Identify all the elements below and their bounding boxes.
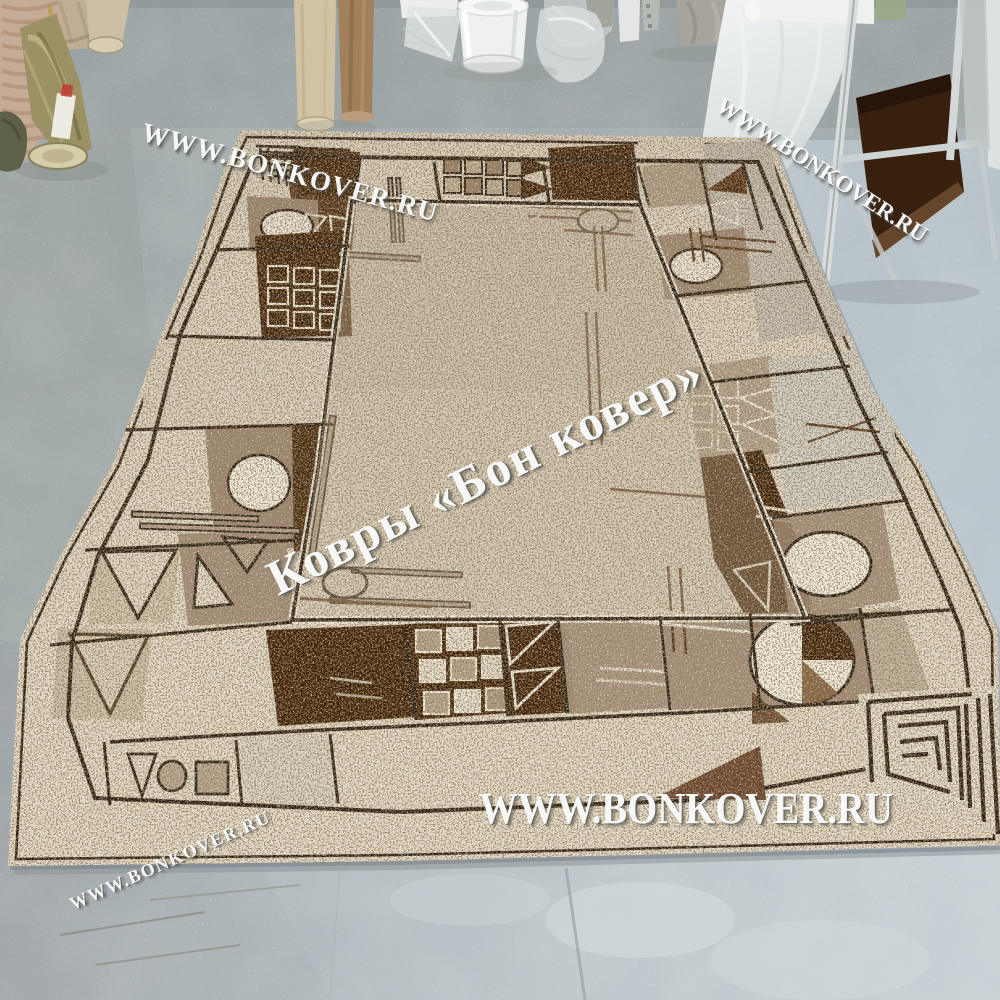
svg-text:WWW.BONKOVER.RU: WWW.BONKOVER.RU xyxy=(479,784,893,833)
